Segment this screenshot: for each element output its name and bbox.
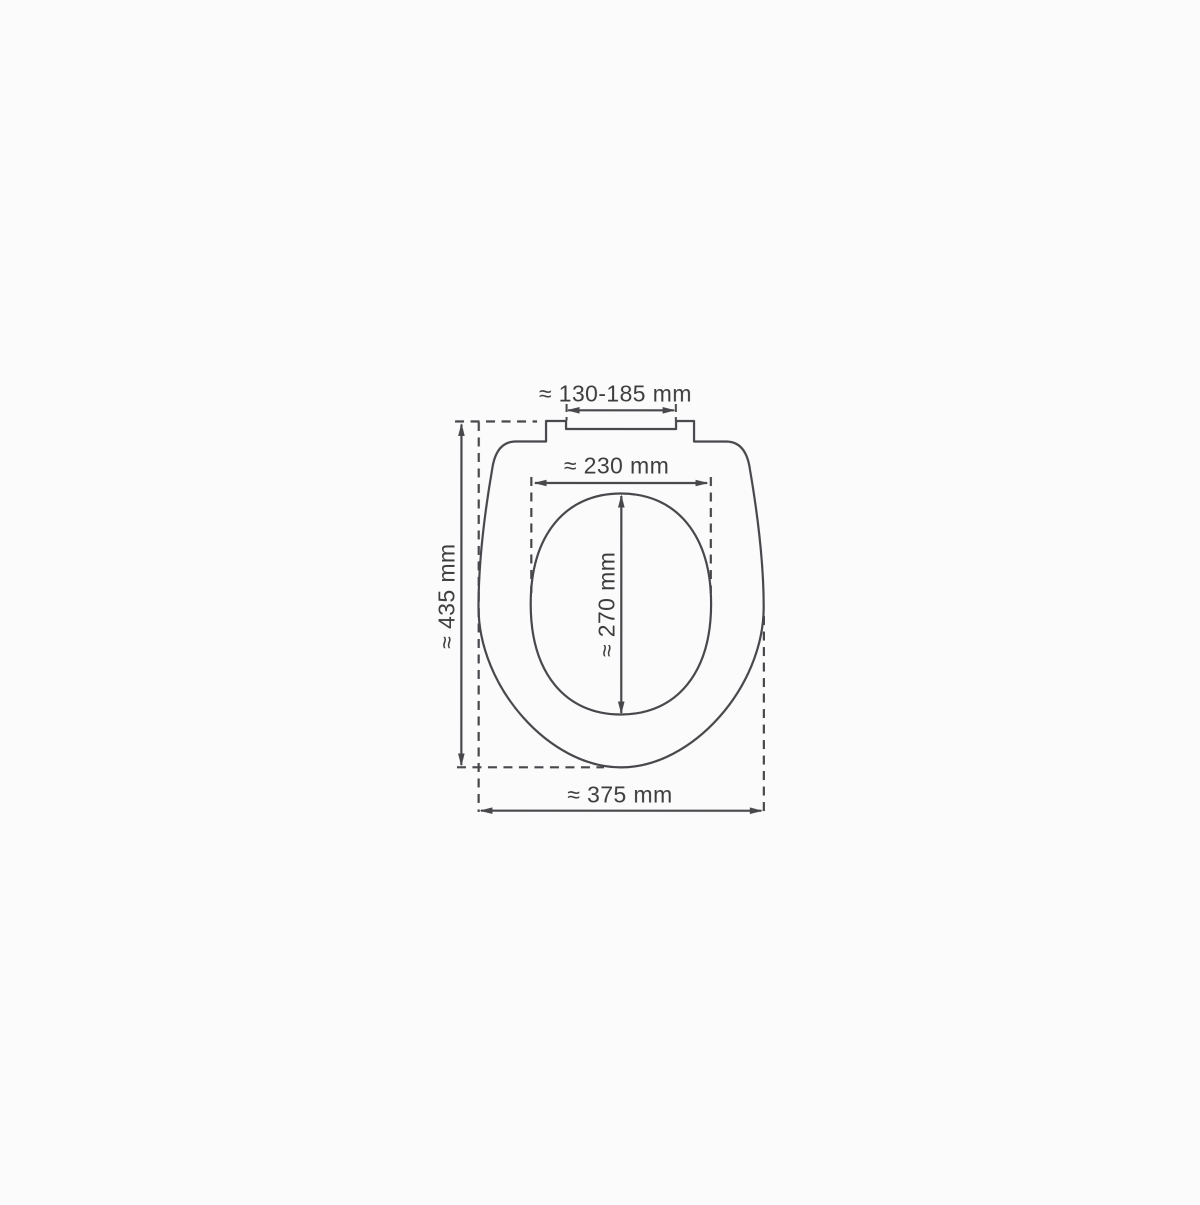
svg-text:≈ 270 mm: ≈ 270 mm [594,552,620,657]
svg-text:≈ 375 mm: ≈ 375 mm [567,781,672,807]
svg-text:≈ 230 mm: ≈ 230 mm [564,453,669,479]
svg-text:≈ 435 mm: ≈ 435 mm [434,543,460,648]
svg-text:≈ 130-185 mm: ≈ 130-185 mm [539,380,692,406]
